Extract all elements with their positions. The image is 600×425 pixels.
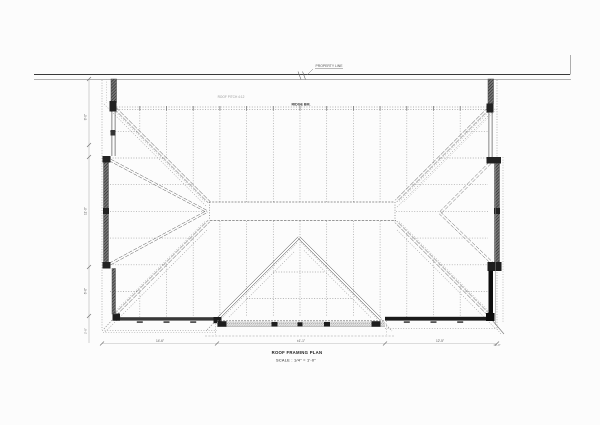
svg-text:±1'-1": ±1'-1" xyxy=(297,339,305,343)
svg-text:SCALE : 1/4" = 1'-0": SCALE : 1/4" = 1'-0" xyxy=(276,357,316,362)
svg-text:ROOF FRAMING PLAN: ROOF FRAMING PLAN xyxy=(272,350,323,355)
svg-text:12'-5": 12'-5" xyxy=(436,339,444,343)
svg-text:14'-6": 14'-6" xyxy=(156,339,164,343)
svg-text:8'-0": 8'-0" xyxy=(84,114,88,120)
svg-text:6'-6": 6'-6" xyxy=(84,288,88,294)
svg-text:2'-0": 2'-0" xyxy=(84,328,88,334)
svg-text:PROPERTY LINE: PROPERTY LINE xyxy=(315,64,343,68)
svg-text:RIDGE BM.: RIDGE BM. xyxy=(292,103,311,107)
svg-text:±0'-0": ±0'-0" xyxy=(493,343,500,347)
svg-text:11'-0": 11'-0" xyxy=(84,207,88,215)
svg-text:ROOF PITCH 4:12: ROOF PITCH 4:12 xyxy=(218,95,245,99)
